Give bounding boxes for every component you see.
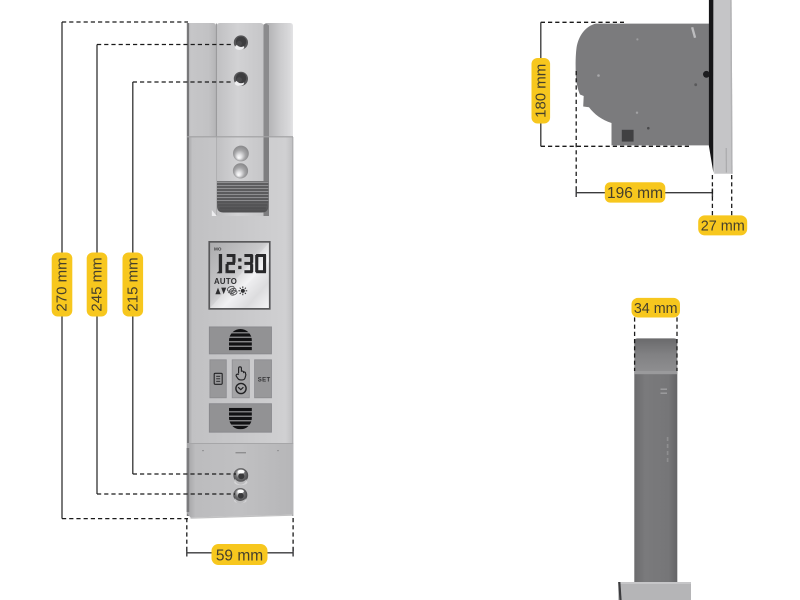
svg-text:SET: SET: [258, 377, 271, 383]
svg-text:215 mm: 215 mm: [124, 257, 141, 311]
svg-text:196 mm: 196 mm: [607, 185, 663, 202]
svg-text:AUTO: AUTO: [214, 277, 237, 286]
svg-text:180 mm: 180 mm: [532, 64, 549, 118]
svg-text:34 mm: 34 mm: [634, 301, 678, 317]
svg-text:59 mm: 59 mm: [216, 547, 263, 564]
svg-text:27 mm: 27 mm: [701, 219, 745, 235]
svg-text:270 mm: 270 mm: [54, 257, 71, 311]
svg-text:MO: MO: [214, 247, 222, 252]
svg-text:245 mm: 245 mm: [89, 257, 106, 311]
